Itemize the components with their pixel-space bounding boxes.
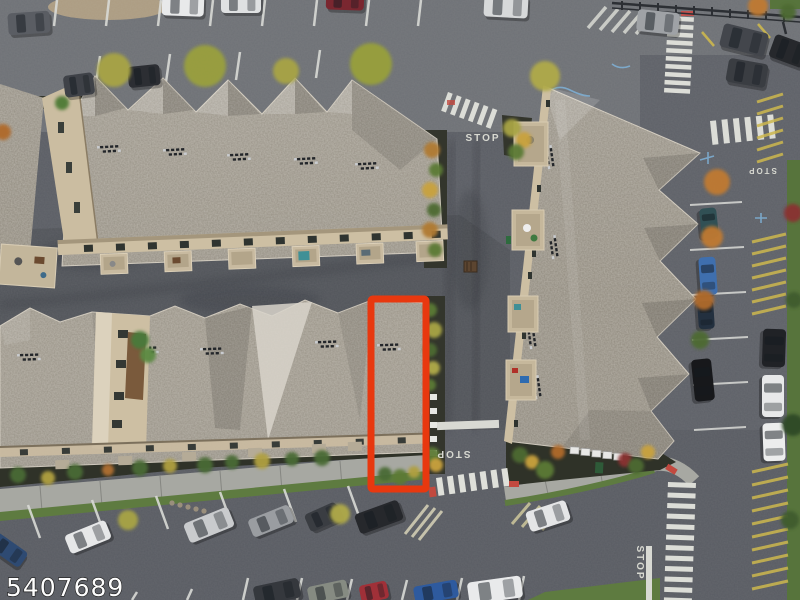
stop-bar-right (646, 546, 652, 600)
tree (429, 458, 443, 472)
grass-edge-right (787, 160, 800, 600)
tree (41, 471, 55, 485)
tree (691, 331, 709, 349)
tree (408, 466, 420, 478)
vehicle (127, 64, 163, 91)
vehicle (63, 72, 98, 101)
tree (55, 96, 69, 110)
stop-marking-center: STOP (435, 448, 470, 459)
tree (422, 182, 438, 198)
tree (273, 58, 299, 84)
tree (641, 445, 655, 459)
vehicle (759, 329, 786, 370)
tree (392, 469, 408, 485)
vehicle (7, 10, 53, 38)
tree (97, 53, 131, 87)
utility-box (595, 462, 604, 473)
vehicle (162, 0, 207, 20)
vehicle (326, 0, 367, 14)
tree (704, 169, 730, 195)
tree (131, 331, 149, 349)
vehicle (759, 375, 784, 419)
tree (140, 347, 156, 363)
tree (551, 445, 565, 459)
vehicle (759, 423, 785, 464)
tree (10, 467, 26, 483)
tree (118, 510, 138, 530)
tree (330, 504, 350, 524)
vehicle (483, 0, 530, 22)
trash-bin (506, 236, 511, 244)
tree (197, 457, 213, 473)
tree (424, 142, 440, 158)
tree (314, 450, 330, 466)
stop-marking-right: STOP (634, 545, 645, 580)
tree (102, 464, 114, 476)
aerial-photo: STOP STOP STOP STOP 5407689 (0, 0, 800, 600)
tree (530, 61, 560, 91)
tree (184, 45, 226, 87)
watermark-text: 5407689 (6, 573, 124, 600)
corner-deck (0, 244, 57, 288)
vehicle (636, 9, 682, 38)
tree (429, 163, 443, 177)
tree (508, 144, 524, 160)
tree (781, 511, 799, 529)
tree (378, 467, 392, 481)
tree (780, 4, 796, 20)
tree (285, 452, 299, 466)
tree (422, 222, 438, 238)
tree (225, 455, 239, 469)
tree (694, 290, 714, 310)
tree (163, 459, 177, 473)
tree (427, 203, 441, 217)
vehicle (221, 0, 263, 16)
tree (67, 464, 83, 480)
stop-marking-top: STOP (465, 133, 500, 144)
tree (350, 43, 392, 85)
tree (132, 460, 148, 476)
stop-marking-east: STOP (747, 166, 777, 175)
tree (254, 453, 270, 469)
vehicle (688, 358, 715, 404)
tree (536, 461, 554, 479)
aerial-photo-canvas: STOP STOP STOP STOP 5407689 (0, 0, 800, 600)
tree (428, 243, 442, 257)
tree (701, 226, 723, 248)
tree (503, 119, 521, 137)
tree (628, 458, 644, 474)
